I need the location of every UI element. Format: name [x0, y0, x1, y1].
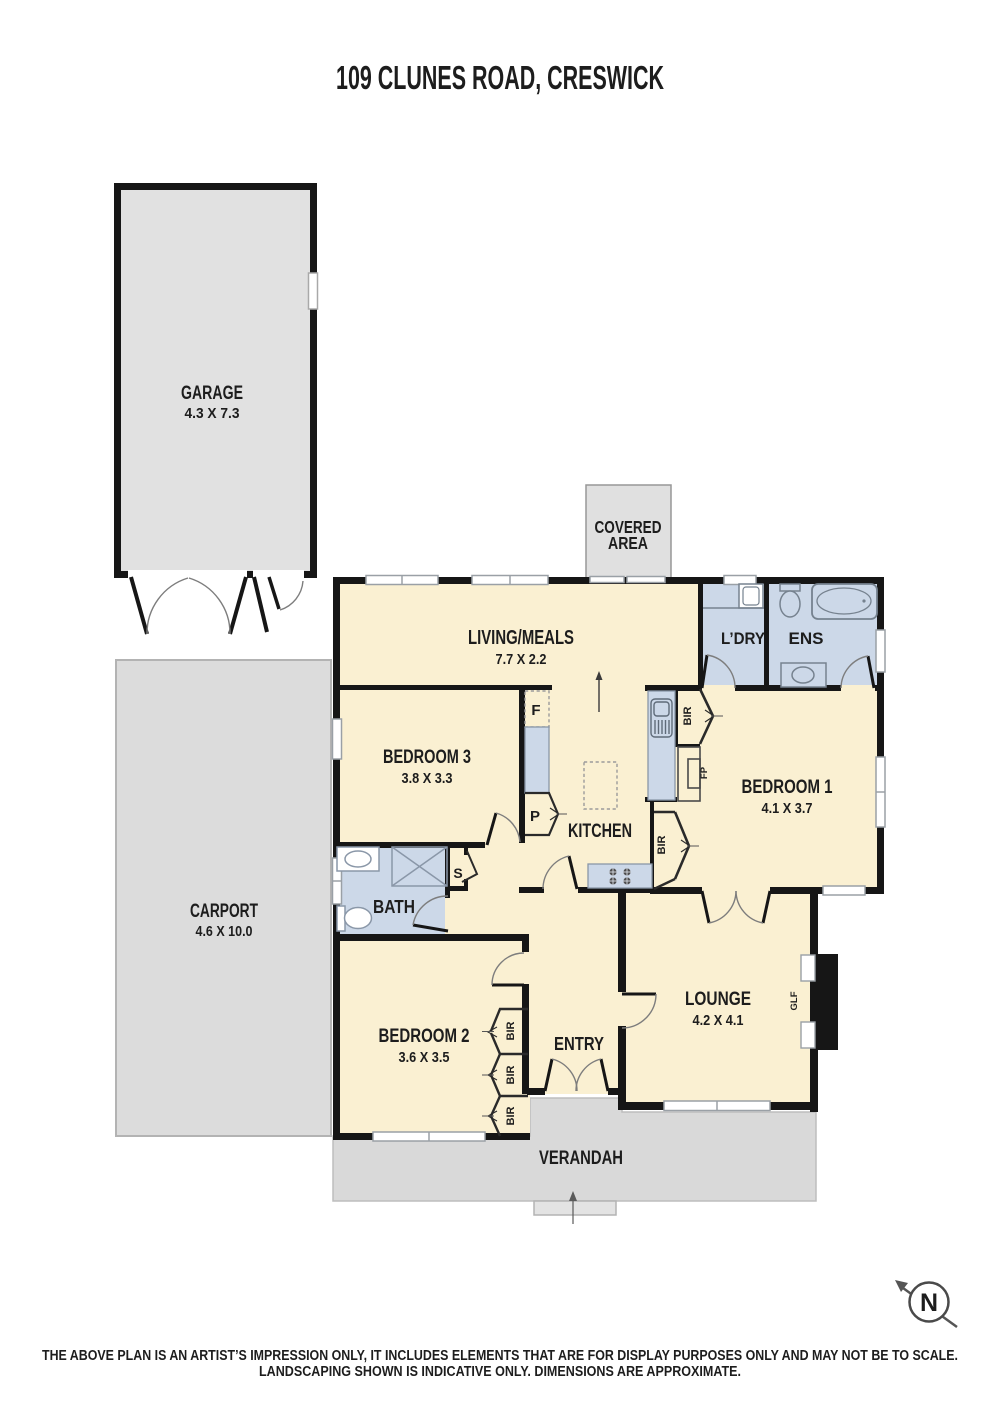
- svg-text:4.3 X 7.3: 4.3 X 7.3: [185, 405, 240, 422]
- svg-text:BIR: BIR: [505, 1021, 517, 1040]
- svg-text:4.2 X 4.1: 4.2 X 4.1: [693, 1012, 744, 1029]
- svg-text:LIVING/MEALS: LIVING/MEALS: [468, 627, 574, 649]
- svg-text:BEDROOM 2: BEDROOM 2: [379, 1026, 470, 1047]
- svg-text:LANDSCAPING SHOWN IS INDICATIV: LANDSCAPING SHOWN IS INDICATIVE ONLY. DI…: [259, 1364, 741, 1380]
- svg-text:AREA: AREA: [608, 533, 648, 553]
- svg-text:BEDROOM 3: BEDROOM 3: [383, 747, 471, 768]
- svg-text:7.7 X 2.2: 7.7 X 2.2: [496, 651, 547, 668]
- svg-text:BIR: BIR: [505, 1065, 517, 1084]
- svg-text:GARAGE: GARAGE: [181, 383, 243, 404]
- svg-text:BEDROOM 1: BEDROOM 1: [742, 777, 833, 798]
- svg-text:4.1 X 3.7: 4.1 X 3.7: [762, 800, 813, 817]
- svg-text:N: N: [920, 1289, 938, 1317]
- svg-text:109 CLUNES ROAD, CRESWICK: 109 CLUNES ROAD, CRESWICK: [336, 59, 664, 96]
- svg-text:3.8 X 3.3: 3.8 X 3.3: [402, 770, 453, 787]
- svg-text:F: F: [531, 702, 540, 719]
- svg-text:ENTRY: ENTRY: [554, 1034, 604, 1054]
- svg-text:L’DRY: L’DRY: [721, 629, 766, 648]
- svg-text:GLF: GLF: [789, 991, 800, 1010]
- svg-text:4.6 X 10.0: 4.6 X 10.0: [196, 923, 253, 940]
- svg-text:P: P: [530, 808, 540, 825]
- svg-text:3.6 X 3.5: 3.6 X 3.5: [399, 1049, 450, 1066]
- svg-text:KITCHEN: KITCHEN: [568, 821, 632, 842]
- svg-text:S: S: [453, 865, 462, 881]
- svg-text:FP: FP: [699, 766, 710, 779]
- svg-text:BATH: BATH: [373, 897, 415, 917]
- svg-text:VERANDAH: VERANDAH: [539, 1148, 623, 1169]
- svg-text:BIR: BIR: [682, 706, 694, 725]
- svg-text:LOUNGE: LOUNGE: [685, 989, 751, 1010]
- svg-text:CARPORT: CARPORT: [190, 901, 258, 922]
- svg-text:ENS: ENS: [789, 629, 824, 648]
- svg-text:THE ABOVE PLAN IS AN ARTIST’S: THE ABOVE PLAN IS AN ARTIST’S IMPRESSION…: [42, 1348, 958, 1364]
- svg-text:BIR: BIR: [656, 835, 668, 854]
- svg-text:BIR: BIR: [505, 1106, 517, 1125]
